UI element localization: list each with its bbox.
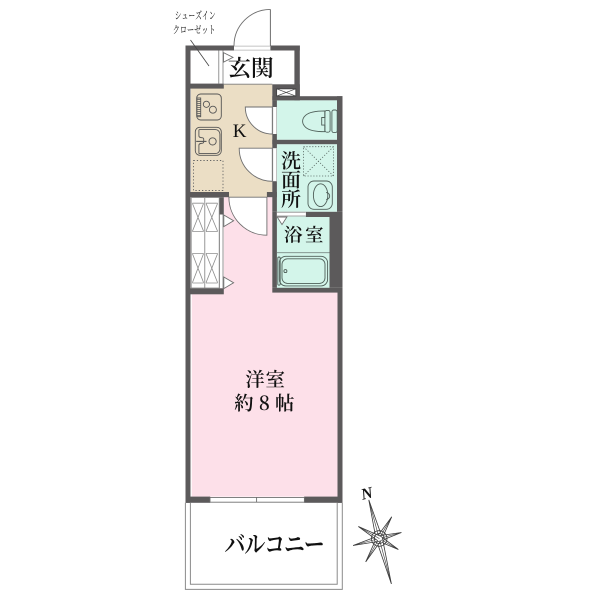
svg-text:K: K — [233, 121, 247, 142]
